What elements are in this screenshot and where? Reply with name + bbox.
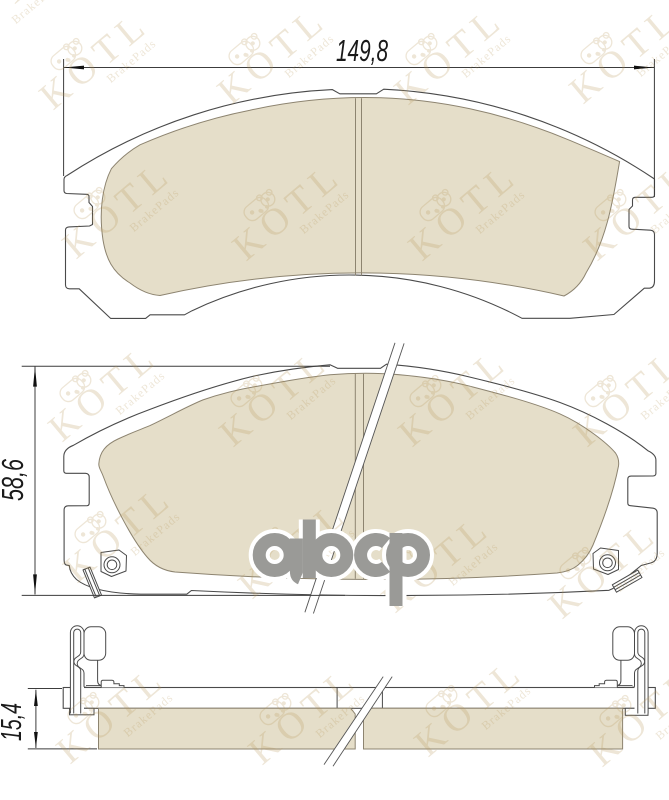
svg-text:15,4: 15,4 xyxy=(0,703,28,741)
svg-text:149,8: 149,8 xyxy=(336,33,389,68)
svg-text:58,6: 58,6 xyxy=(0,458,30,501)
